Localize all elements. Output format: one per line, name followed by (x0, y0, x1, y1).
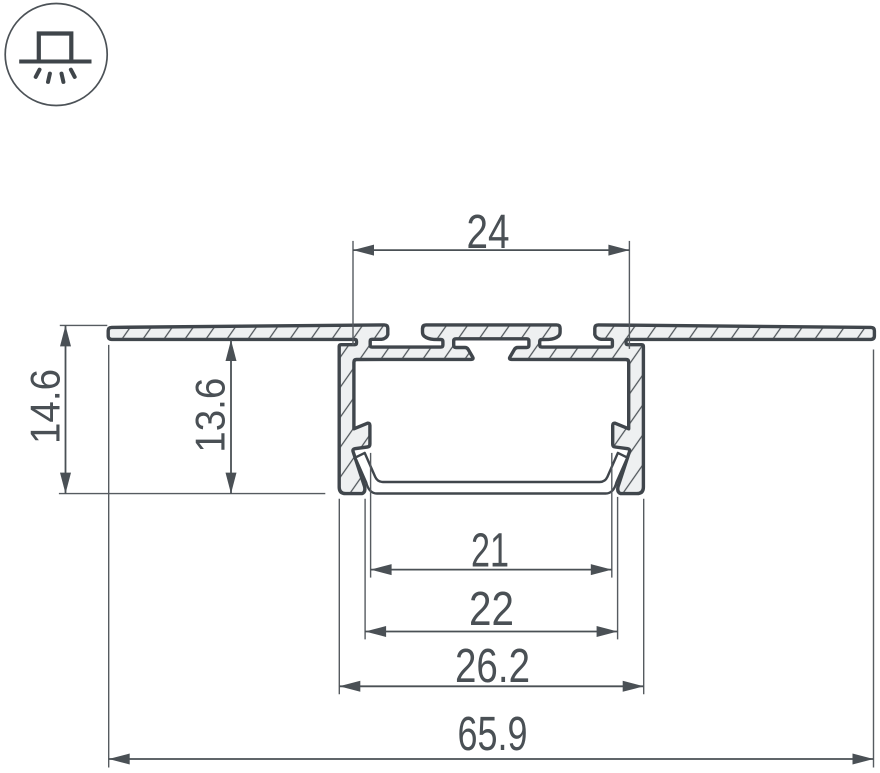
svg-text:13.6: 13.6 (186, 378, 233, 453)
svg-text:22: 22 (469, 583, 514, 636)
svg-text:21: 21 (471, 525, 509, 578)
svg-text:14.6: 14.6 (22, 369, 69, 444)
svg-text:26.2: 26.2 (455, 640, 530, 693)
svg-text:65.9: 65.9 (458, 708, 528, 761)
svg-text:24: 24 (467, 206, 510, 259)
